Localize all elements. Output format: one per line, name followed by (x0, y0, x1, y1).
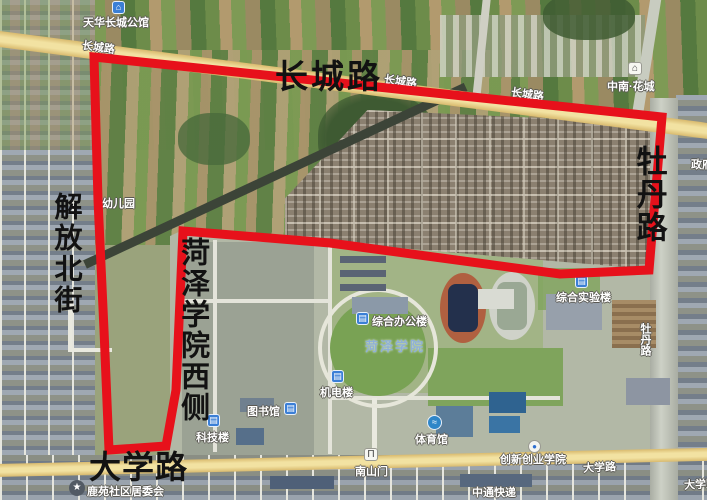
label-changcheng-road: 长城路 (275, 60, 383, 94)
label-jiefang-north-street: 解放北街 (52, 192, 81, 316)
label-daxue-road: 大学路 (89, 451, 188, 484)
satellite-map-canvas: ⌂ 天华长城公馆 ⌂ 中南·花城 幼儿园 长城路 长城路 长城路 政府 牡丹路 … (0, 0, 707, 500)
label-mudan-road: 牡丹路 (633, 145, 665, 244)
label-college-west-side: 菏泽学院西侧 (177, 237, 207, 423)
